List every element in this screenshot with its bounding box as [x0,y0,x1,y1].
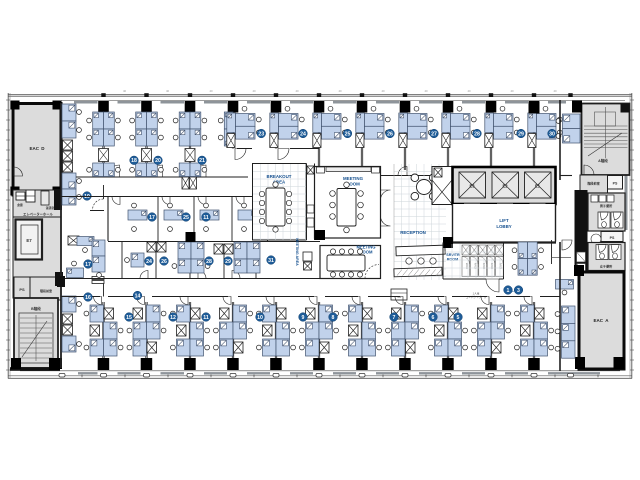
svg-text:20: 20 [155,158,161,164]
svg-text:18: 18 [131,158,137,164]
svg-text:1: 1 [507,288,510,294]
svg-text:17: 17 [149,215,155,221]
svg-text:24: 24 [300,131,306,137]
svg-text:PS: PS [610,236,615,240]
svg-text:21: 21 [199,158,205,164]
svg-text:8: 8 [332,315,335,321]
svg-text:40: 40 [338,89,342,93]
svg-text:11: 11 [203,215,209,221]
svg-text:SRV/TR: SRV/TR [446,253,460,257]
svg-text:7: 7 [393,315,396,321]
svg-text:A階段: A階段 [598,158,608,163]
svg-text:ROOM: ROOM [447,258,458,262]
svg-text:9: 9 [302,315,305,321]
svg-text:EAC A: EAC A [593,318,609,323]
svg-text:28: 28 [474,131,480,137]
svg-text:EAC D: EAC D [29,146,45,151]
svg-text:16: 16 [85,295,91,301]
svg-text:5: 5 [457,315,460,321]
svg-text:RACK: RACK [490,263,493,270]
svg-text:40: 40 [553,89,557,93]
svg-text:31: 31 [268,258,274,264]
svg-text:30: 30 [549,131,555,137]
svg-text:LIFT: LIFT [499,218,509,223]
svg-text:11: 11 [203,315,209,321]
svg-text:40: 40 [424,89,428,93]
svg-text:40: 40 [295,89,299,93]
svg-text:E2: E2 [502,184,508,189]
svg-text:PS: PS [19,287,25,292]
svg-text:湯沸室: 湯沸室 [46,206,55,210]
svg-text:PS: PS [613,182,618,186]
svg-text:40: 40 [209,89,213,93]
svg-text:40: 40 [510,89,514,93]
svg-text:E3: E3 [469,184,475,189]
svg-text:女子便所: 女子便所 [600,264,613,269]
svg-text:40: 40 [467,89,471,93]
svg-text:6: 6 [432,315,435,321]
svg-text:17: 17 [85,262,91,268]
svg-text:男子便所: 男子便所 [599,203,613,208]
svg-text:26: 26 [387,131,393,137]
svg-text:23: 23 [258,131,264,137]
svg-text:階段前室: 階段前室 [40,288,52,293]
svg-text:10: 10 [257,315,263,321]
svg-text:BREAKOUT: BREAKOUT [267,174,292,179]
svg-text:3: 3 [517,288,520,294]
svg-text:27: 27 [431,131,437,137]
svg-text:MEETING AREA: MEETING AREA [295,238,299,266]
svg-text:28: 28 [206,259,212,265]
svg-text:14: 14 [135,293,141,299]
svg-text:24: 24 [146,259,152,265]
svg-text:RACK: RACK [465,263,468,270]
svg-text:LOBBY: LOBBY [496,224,511,229]
svg-text:RACK: RACK [482,263,485,270]
svg-text:29: 29 [225,259,231,265]
svg-text:12: 12 [170,315,176,321]
svg-text:E7: E7 [26,238,32,243]
svg-text:25: 25 [183,215,189,221]
svg-text:15: 15 [126,315,132,321]
svg-text:40: 40 [123,89,127,93]
svg-text:40: 40 [252,89,256,93]
svg-text:26: 26 [161,259,167,265]
svg-text:階段前室: 階段前室 [587,181,599,186]
svg-text:25: 25 [345,131,351,137]
svg-text:29: 29 [518,131,524,137]
svg-text:MEETING: MEETING [343,176,364,181]
svg-text:倉庫: 倉庫 [17,203,23,207]
svg-text:エレベーターホール: エレベーターホール [23,212,53,217]
svg-text:E1: E1 [535,184,541,189]
svg-text:RECEPTION: RECEPTION [400,230,426,235]
svg-text:40: 40 [166,89,170,93]
svg-text:B階段: B階段 [31,306,41,311]
svg-text:40: 40 [381,89,385,93]
